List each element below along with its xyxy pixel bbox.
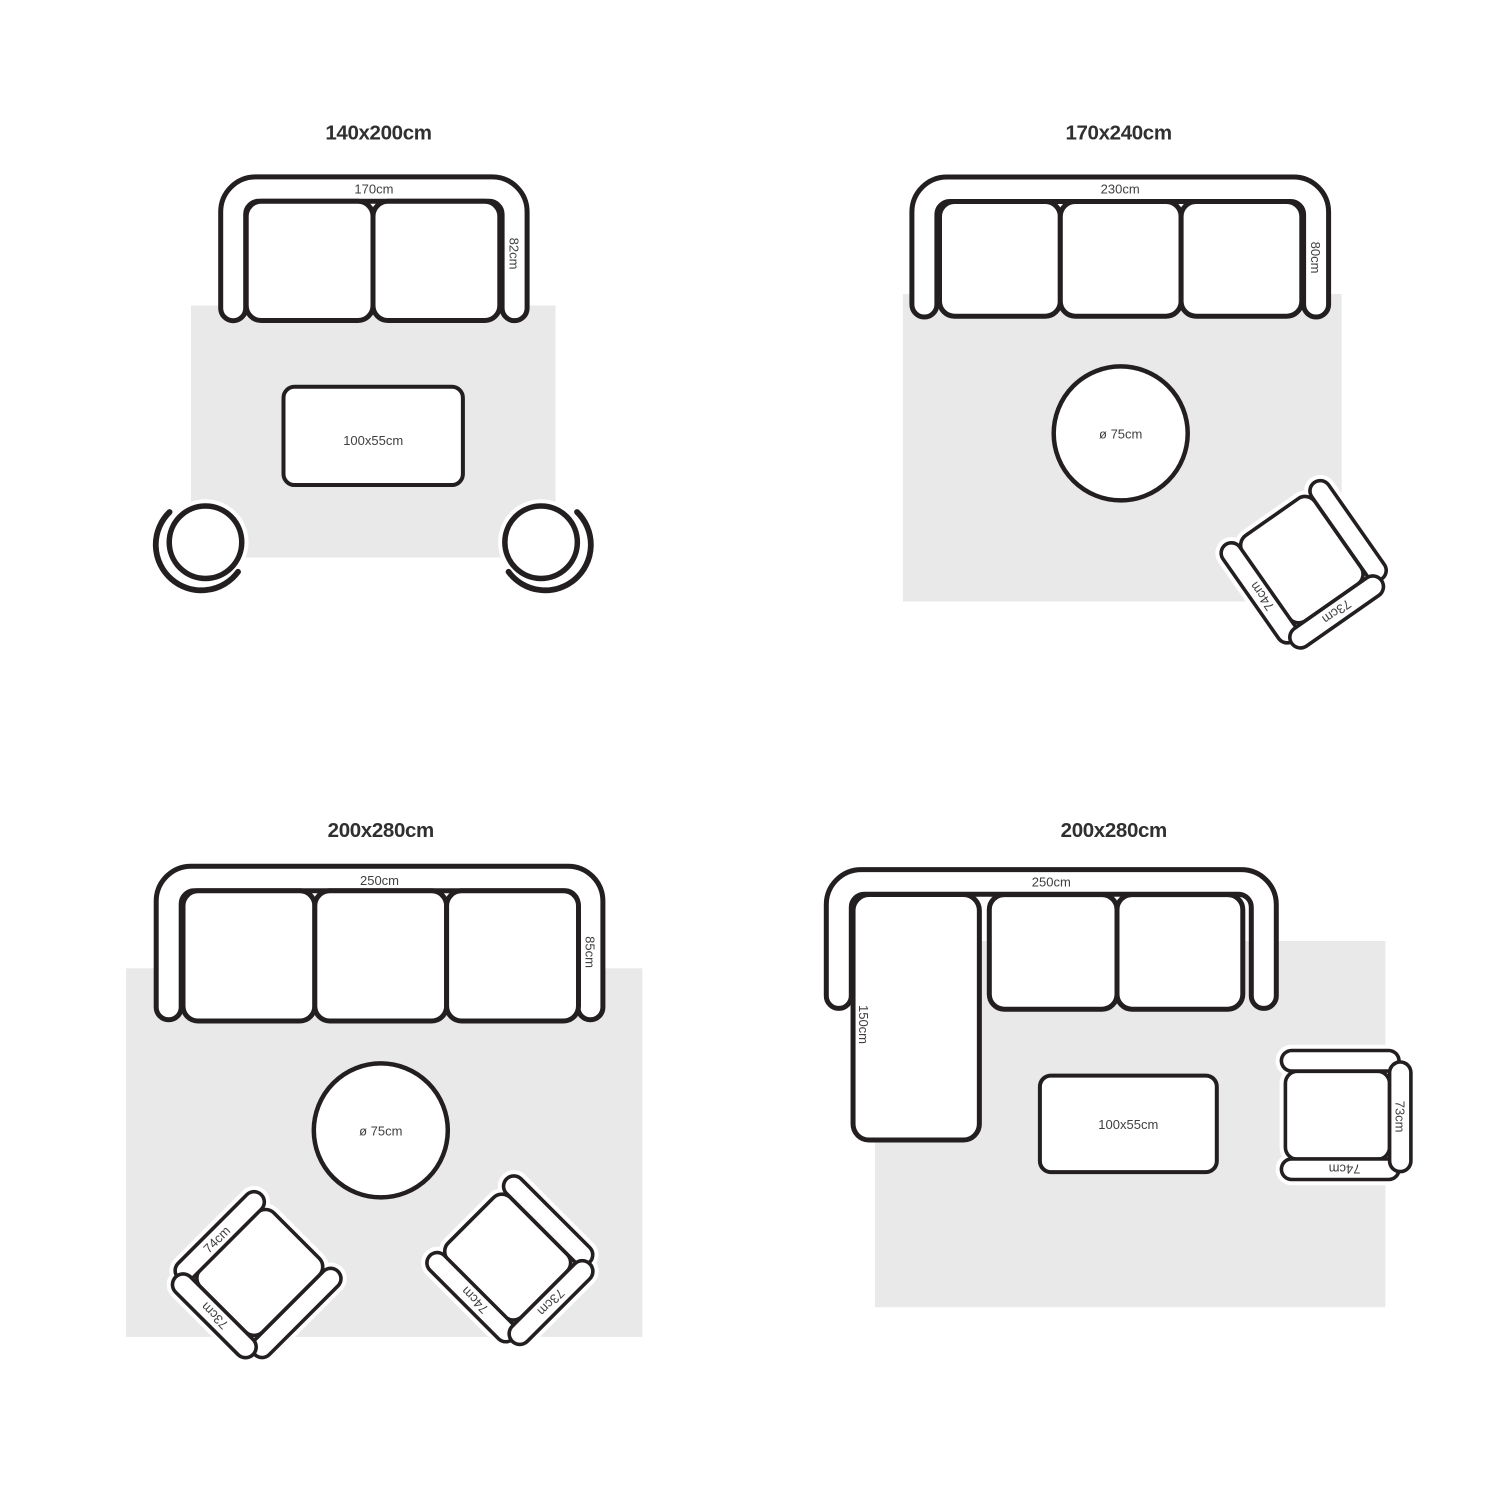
svg-text:ø 75cm: ø 75cm	[1099, 426, 1142, 441]
svg-text:100x55cm: 100x55cm	[343, 433, 403, 448]
svg-text:250cm: 250cm	[360, 873, 399, 888]
svg-text:140x200cm: 140x200cm	[325, 122, 431, 145]
svg-text:250cm: 250cm	[1032, 875, 1071, 890]
svg-text:82cm: 82cm	[507, 238, 522, 270]
svg-text:150cm: 150cm	[856, 1005, 871, 1044]
svg-text:200x280cm: 200x280cm	[328, 819, 434, 842]
svg-text:80cm: 80cm	[1308, 242, 1323, 274]
svg-text:170x240cm: 170x240cm	[1065, 122, 1171, 145]
svg-text:ø 75cm: ø 75cm	[359, 1123, 402, 1138]
svg-text:85cm: 85cm	[583, 936, 598, 968]
svg-text:230cm: 230cm	[1101, 182, 1140, 197]
svg-text:200x280cm: 200x280cm	[1061, 819, 1167, 842]
svg-text:100x55cm: 100x55cm	[1098, 1117, 1158, 1132]
svg-text:170cm: 170cm	[354, 182, 393, 197]
